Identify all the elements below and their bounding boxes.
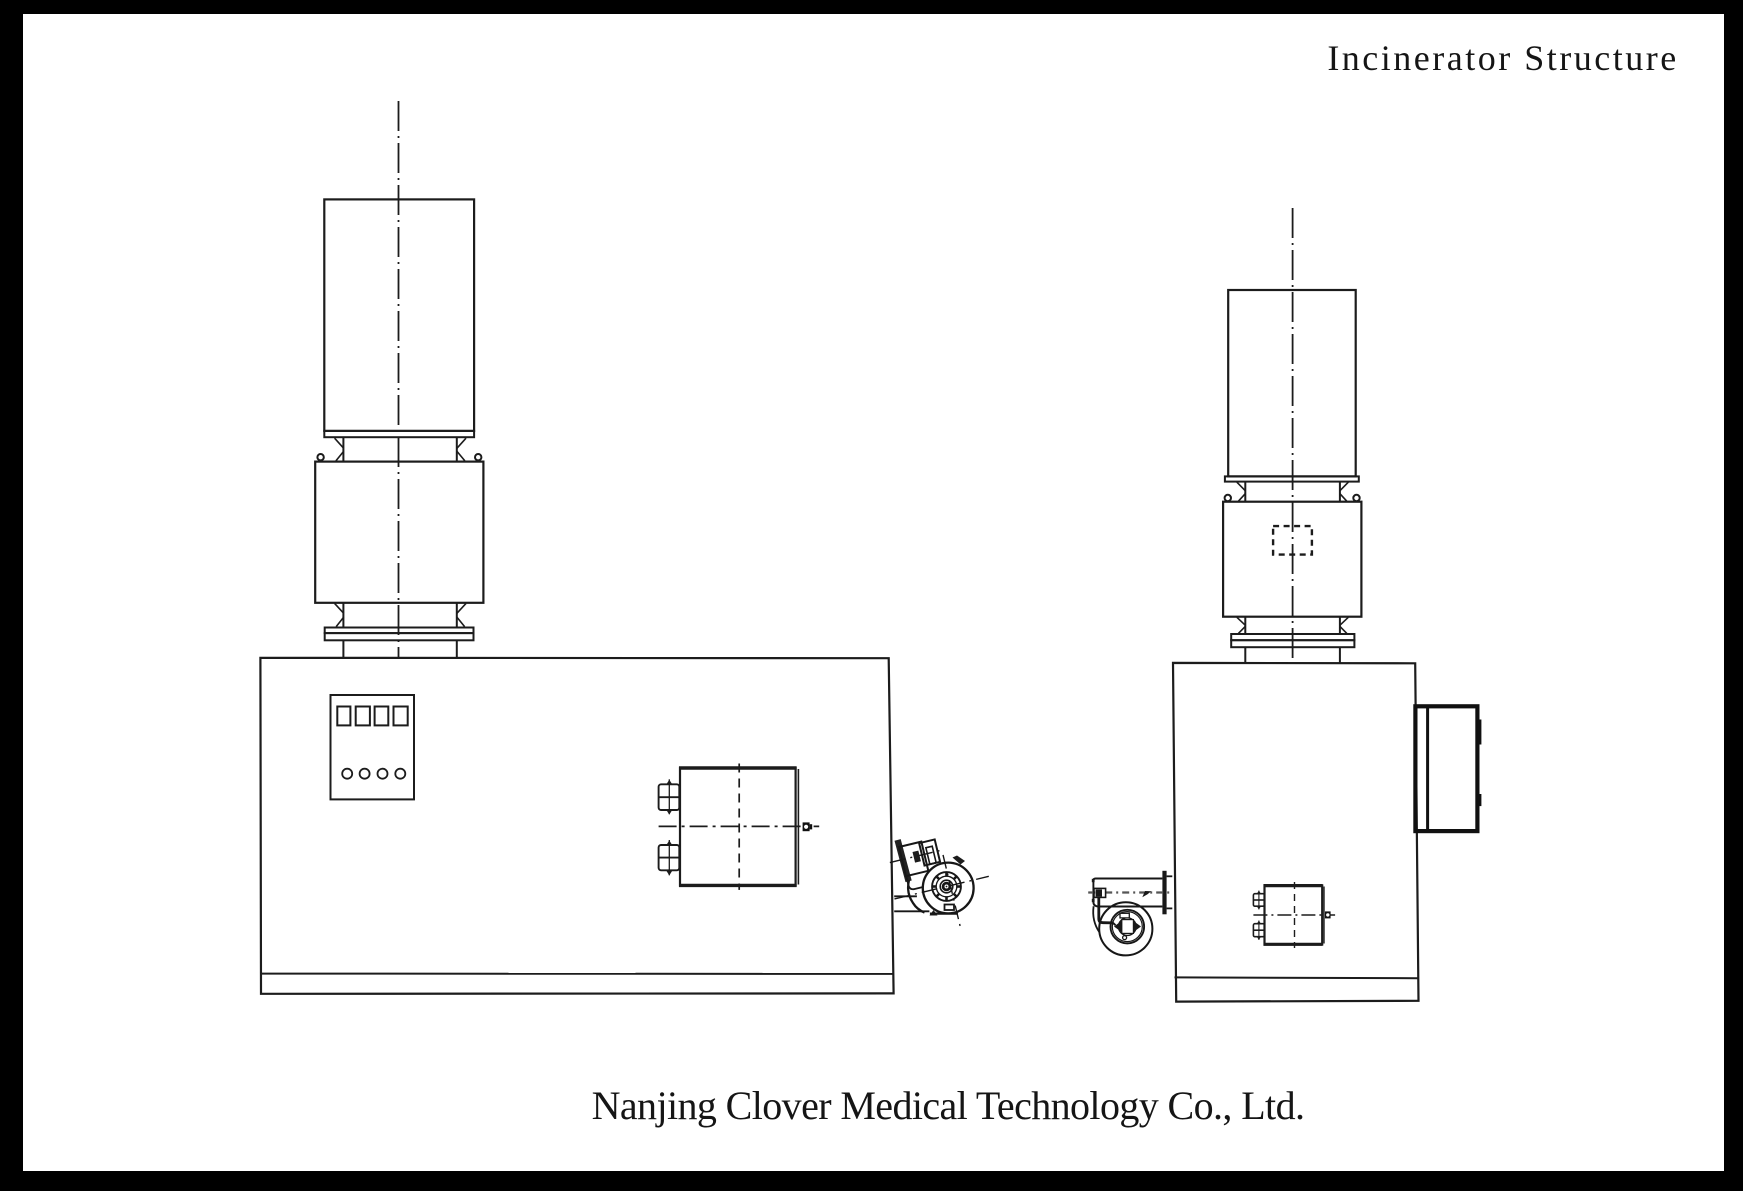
- svg-text:Nanjing Clover Medical Technol: Nanjing Clover Medical Technology Co., L…: [592, 1083, 1305, 1128]
- svg-text:Incinerator Structure: Incinerator Structure: [1327, 38, 1678, 78]
